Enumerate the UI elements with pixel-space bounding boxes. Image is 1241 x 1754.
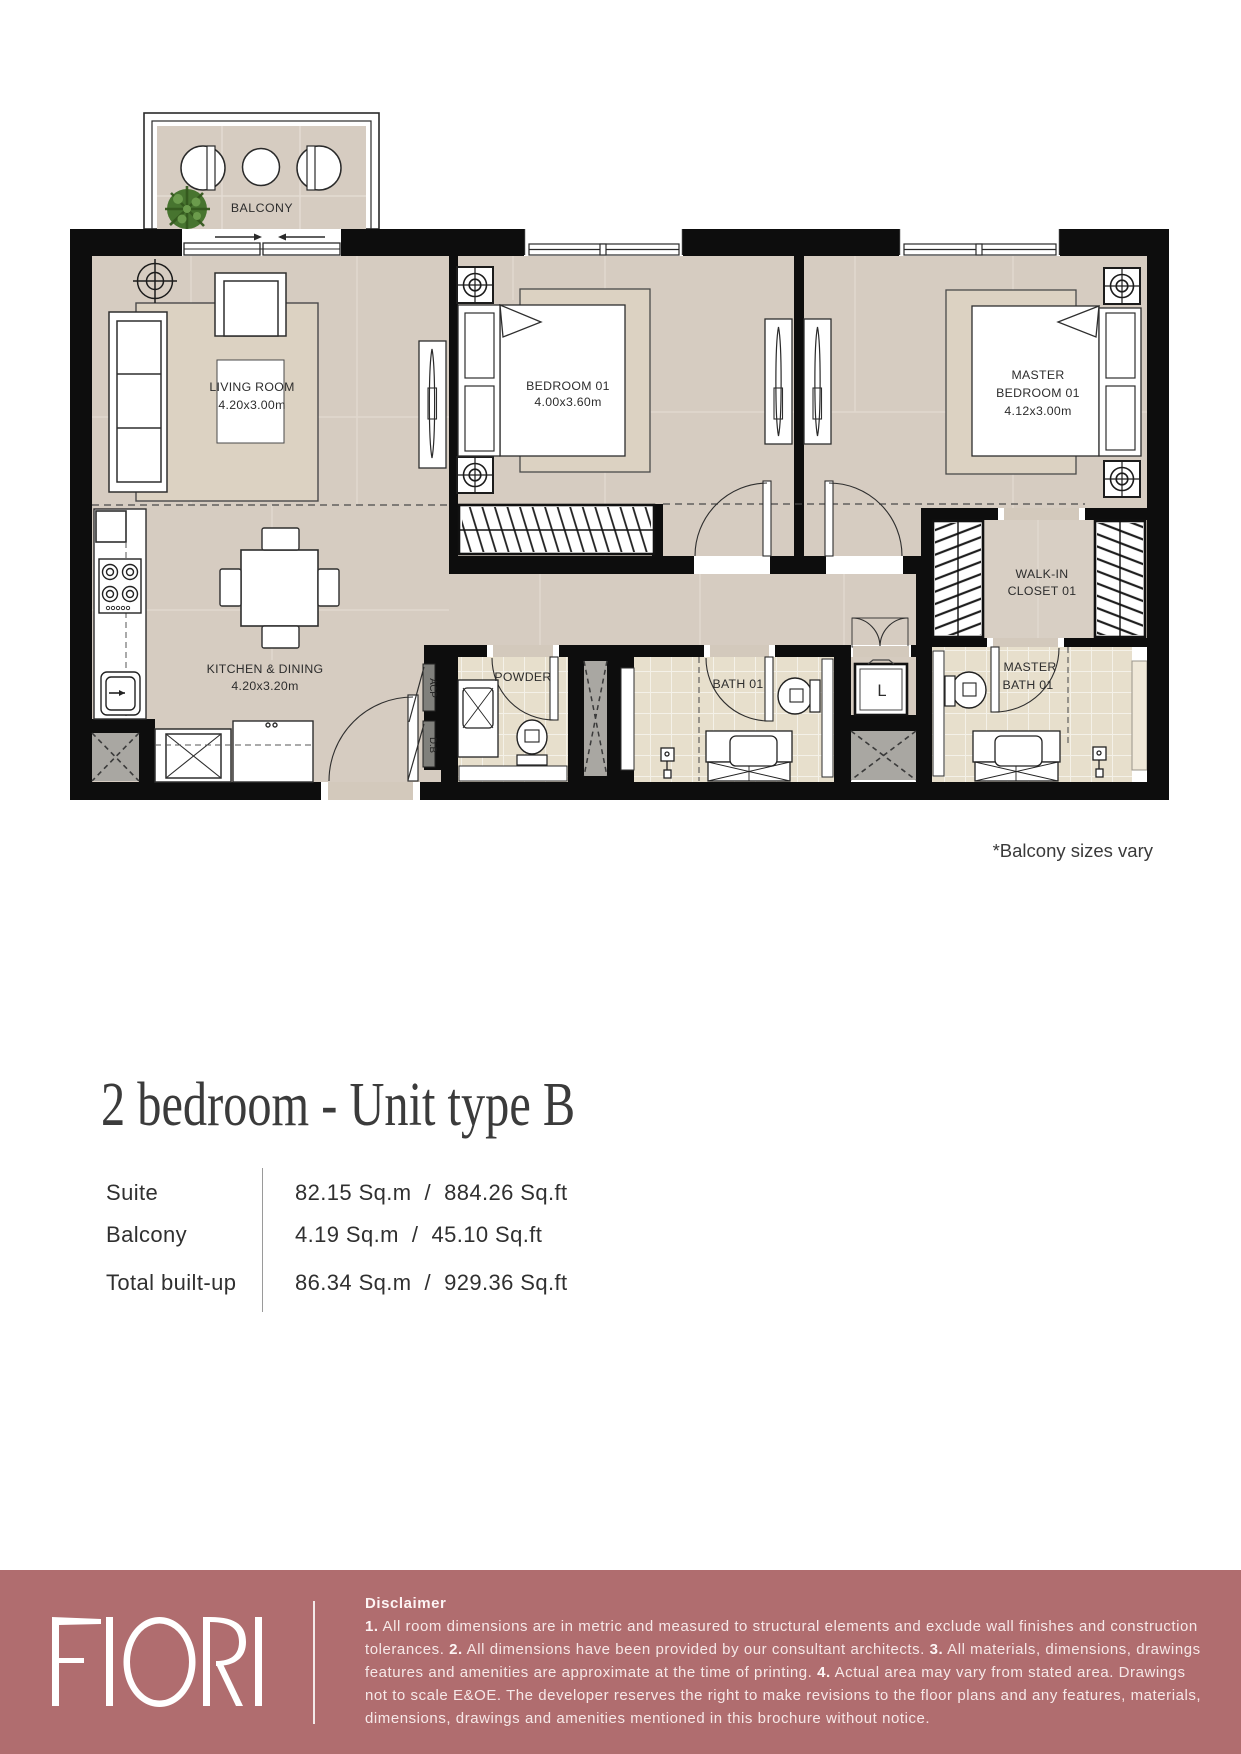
svg-text:BEDROOM 01: BEDROOM 01 — [526, 379, 610, 393]
svg-text:BEDROOM 01: BEDROOM 01 — [996, 386, 1080, 400]
svg-text:POWDER: POWDER — [494, 670, 551, 684]
svg-text:MASTER: MASTER — [1003, 660, 1056, 674]
svg-text:ACP: ACP — [427, 678, 438, 698]
svg-text:CLOSET 01: CLOSET 01 — [1008, 584, 1077, 598]
svg-text:L: L — [877, 682, 886, 700]
svg-text:MASTER: MASTER — [1011, 368, 1064, 382]
svg-text:WALK-IN: WALK-IN — [1016, 567, 1069, 581]
svg-text:D.B: D.B — [427, 737, 438, 753]
svg-text:4.00x3.60m: 4.00x3.60m — [534, 395, 601, 409]
svg-text:4.20x3.20m: 4.20x3.20m — [231, 679, 298, 693]
svg-text:BATH 01: BATH 01 — [712, 677, 763, 691]
svg-text:KITCHEN & DINING: KITCHEN & DINING — [207, 662, 324, 676]
svg-text:BALCONY: BALCONY — [231, 201, 293, 215]
svg-text:LIVING ROOM: LIVING ROOM — [209, 380, 294, 394]
svg-text:4.12x3.00m: 4.12x3.00m — [1004, 404, 1071, 418]
svg-text:BATH 01: BATH 01 — [1002, 678, 1053, 692]
svg-text:4.20x3.00m: 4.20x3.00m — [218, 398, 285, 412]
